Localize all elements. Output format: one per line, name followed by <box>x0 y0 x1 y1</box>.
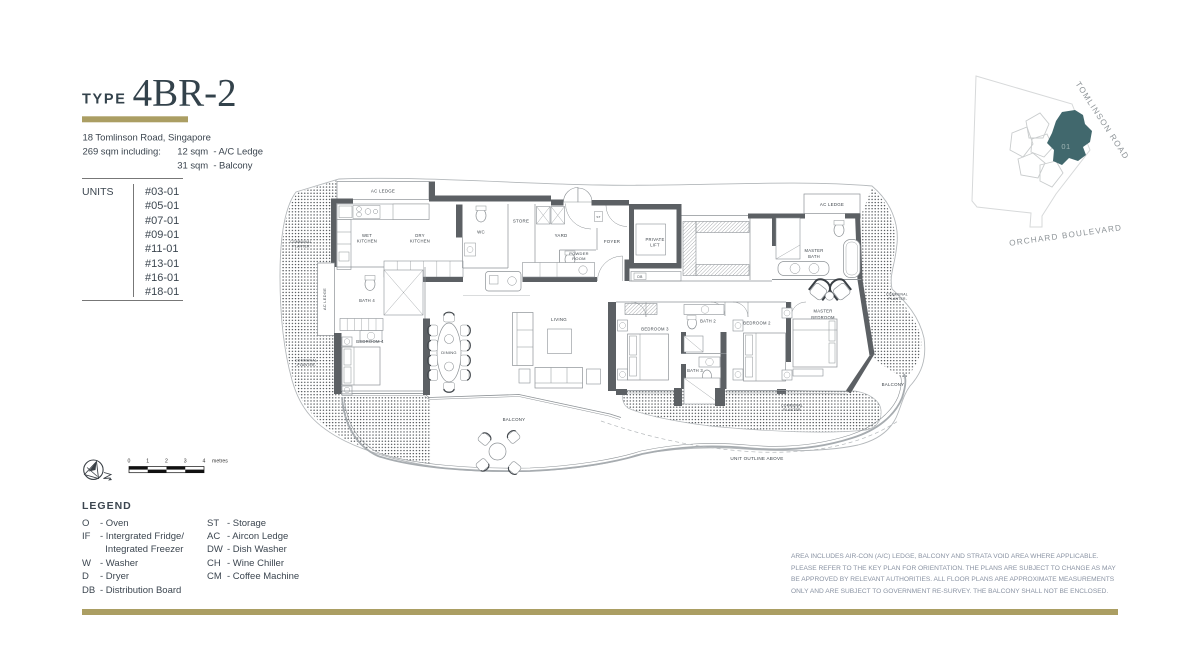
svg-text:0: 0 <box>128 459 131 465</box>
svg-text:DRY: DRY <box>415 233 425 238</box>
svg-text:STORE: STORE <box>513 219 529 224</box>
svg-text:DINING: DINING <box>441 350 457 355</box>
svg-text:WC: WC <box>477 230 485 235</box>
svg-text:PRIVATE: PRIVATE <box>645 237 664 242</box>
svg-text:ST: ST <box>596 215 600 219</box>
svg-text:BEDROOM 3: BEDROOM 3 <box>641 327 669 332</box>
svg-text:PLANTER: PLANTER <box>292 245 310 249</box>
svg-text:-PLANTER-: -PLANTER- <box>782 408 802 412</box>
svg-text:COMMUNAL: COMMUNAL <box>886 293 908 297</box>
svg-text:BATH: BATH <box>808 254 820 259</box>
svg-text:BEDROOM 4: BEDROOM 4 <box>356 339 384 344</box>
svg-text:01: 01 <box>1061 142 1070 151</box>
svg-text:FOYER: FOYER <box>604 239 620 244</box>
svg-text:3: 3 <box>184 459 187 465</box>
svg-text:BALCONY: BALCONY <box>503 417 526 422</box>
svg-text:MASTER: MASTER <box>814 309 833 314</box>
svg-text:ORCHARD BOULEVARD: ORCHARD BOULEVARD <box>1009 223 1123 248</box>
svg-text:MASTER: MASTER <box>805 248 824 253</box>
svg-text:DB: DB <box>637 275 643 279</box>
svg-text:KITCHEN: KITCHEN <box>357 239 377 244</box>
svg-text:KITCHEN: KITCHEN <box>410 239 430 244</box>
svg-text:-PLANTER-: -PLANTER- <box>296 363 316 367</box>
svg-text:LIVING: LIVING <box>551 317 567 322</box>
svg-text:UNIT OUTLINE ABOVE: UNIT OUTLINE ABOVE <box>730 456 783 461</box>
svg-text:BALCONY: BALCONY <box>882 382 905 387</box>
svg-text:2: 2 <box>165 459 168 465</box>
svg-text:4: 4 <box>203 459 206 465</box>
svg-text:COMMUNAL: COMMUNAL <box>781 404 803 408</box>
svg-text:metres: metres <box>212 459 228 465</box>
svg-text:AC LEDGE: AC LEDGE <box>820 202 844 207</box>
svg-text:BATH 4: BATH 4 <box>359 298 375 303</box>
svg-text:BEDROOM 2: BEDROOM 2 <box>743 321 771 326</box>
svg-text:YARD: YARD <box>555 233 568 238</box>
svg-text:BATH 2: BATH 2 <box>700 319 716 324</box>
svg-text:1: 1 <box>146 459 149 465</box>
svg-text:ROOM: ROOM <box>572 256 585 261</box>
svg-text:LIFT: LIFT <box>650 243 660 248</box>
svg-text:COMMUNAL: COMMUNAL <box>295 359 317 363</box>
svg-text:-PLANTER-: -PLANTER- <box>887 297 907 301</box>
svg-text:WET: WET <box>362 233 372 238</box>
svg-text:AC LEDGE: AC LEDGE <box>322 288 327 310</box>
svg-text:BATH 3: BATH 3 <box>687 368 703 373</box>
svg-text:COMMUNAL: COMMUNAL <box>290 240 312 244</box>
svg-text:AC LEDGE: AC LEDGE <box>371 189 395 194</box>
